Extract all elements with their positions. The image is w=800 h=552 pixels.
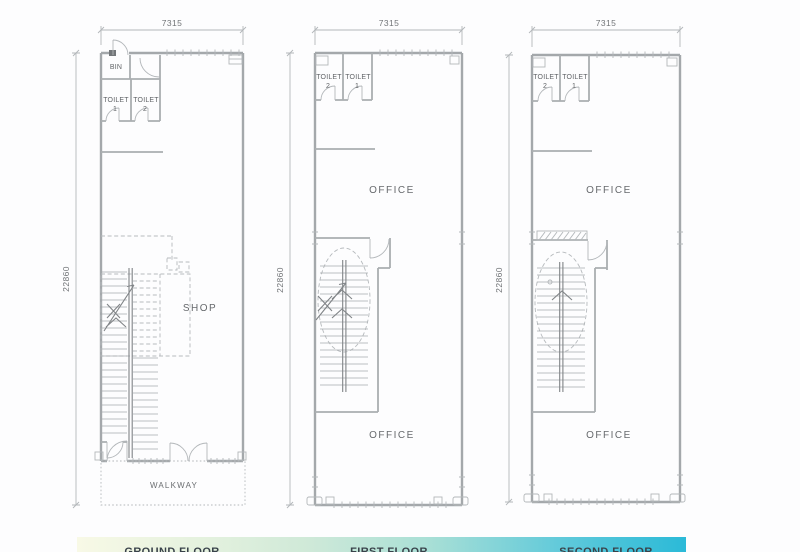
first-interior-walls (315, 53, 390, 412)
first-toilet-left-label: TOILET (316, 74, 342, 81)
ground-floor-plan: 7315 22860 (61, 18, 246, 508)
second-toilet-left-label: TOILET (533, 74, 559, 81)
ground-toilet-right-label: TOILET (133, 97, 159, 104)
first-doors (321, 86, 389, 258)
ground-width-dim: 7315 (162, 18, 183, 28)
ground-walkway-label: WALKWAY (150, 481, 198, 490)
banner-label-first-floor: FIRST FLOOR (350, 546, 428, 552)
second-interior-walls (532, 55, 607, 412)
second-stair-railing-hatch (537, 231, 587, 240)
ground-toilet-right-num: 2 (143, 106, 147, 113)
ground-height-dim: 22860 (61, 266, 71, 292)
banner-label-ground-floor: GROUND FLOOR (124, 546, 219, 552)
second-staircase (535, 252, 587, 392)
second-office-top-label: OFFICE (586, 185, 632, 196)
ground-staircase (102, 268, 159, 458)
second-floor-plan: 7315 22860 (494, 18, 685, 505)
first-office-bottom-label: OFFICE (369, 430, 415, 441)
first-toilet-right-num: 1 (355, 83, 359, 90)
first-width-dim: 7315 (379, 18, 400, 28)
second-doors (538, 87, 607, 260)
second-width-dim: 7315 (596, 18, 617, 28)
ground-toilet-left-num: 1 (113, 106, 117, 113)
second-toilet-right-label: TOILET (562, 74, 588, 81)
floor-plans-canvas: 7315 22860 (0, 0, 800, 552)
first-toilet-left-num: 2 (326, 83, 330, 90)
floor-banner: GROUND FLOOR FIRST FLOOR SECOND FLOOR (77, 537, 686, 552)
ground-dashed-overhang (101, 236, 190, 356)
ground-toilet-left-label: TOILET (103, 97, 129, 104)
banner-label-second-floor: SECOND FLOOR (559, 546, 652, 552)
ground-dimensions: 7315 22860 (61, 18, 246, 508)
ground-shop-label: SHOP (183, 303, 217, 314)
first-floor-plan: 7315 22860 TOILET 2 TOILET 1 OF (275, 18, 468, 508)
second-height-dim: 22860 (494, 267, 504, 293)
first-height-dim: 22860 (275, 267, 285, 293)
first-staircase (316, 248, 370, 392)
ground-bin-label: BIN (110, 64, 122, 71)
second-toilet-left-num: 2 (543, 83, 547, 90)
second-office-bottom-label: OFFICE (586, 430, 632, 441)
ground-threshold-detail (109, 50, 116, 56)
first-office-top-label: OFFICE (369, 185, 415, 196)
first-toilet-right-label: TOILET (345, 74, 371, 81)
second-toilet-right-num: 1 (572, 83, 576, 90)
